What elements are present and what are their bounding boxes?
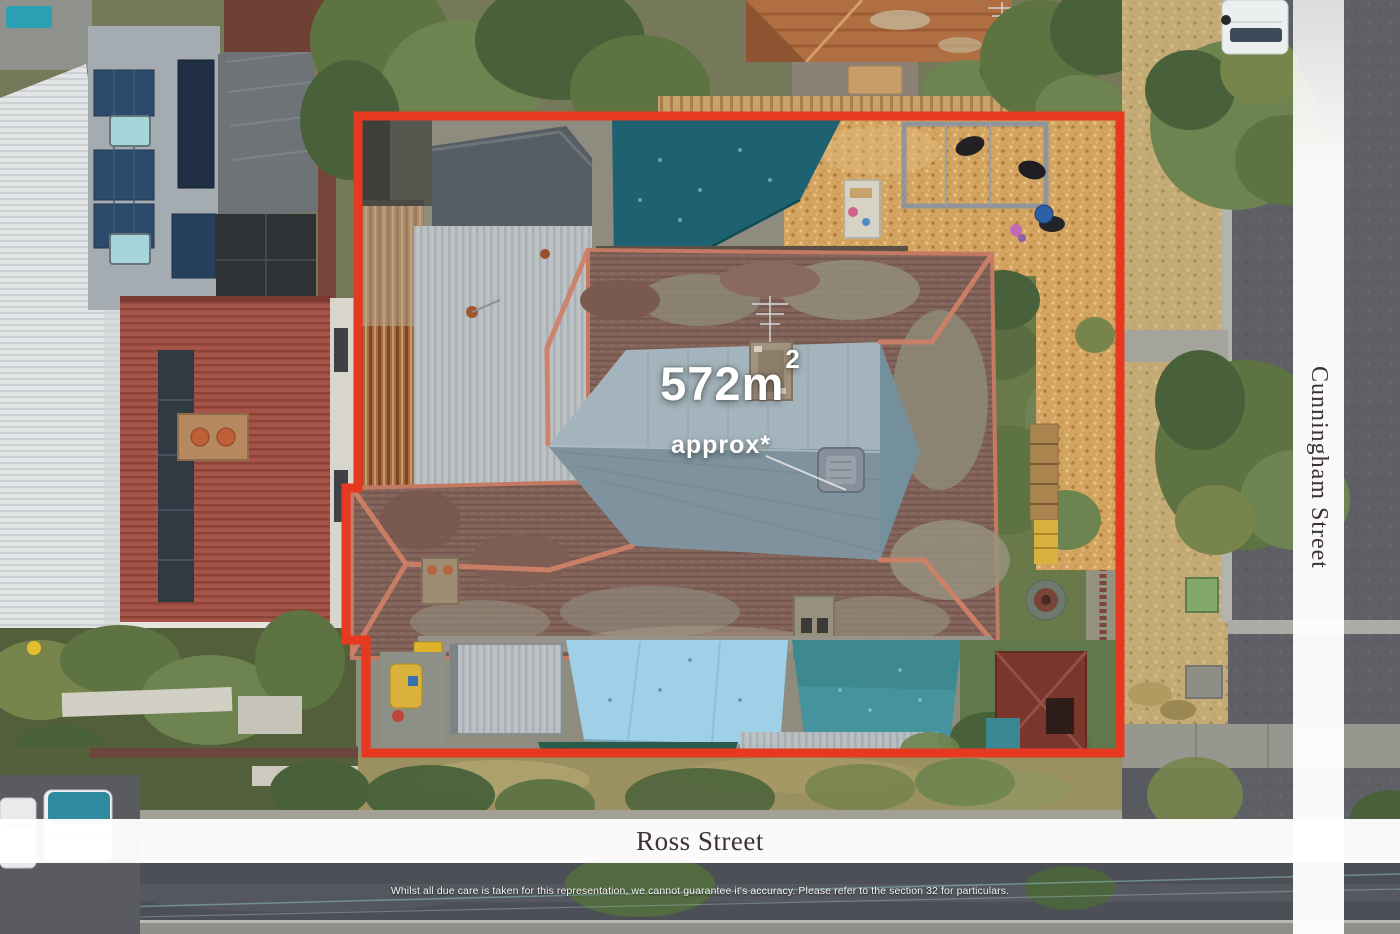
area-label: 572m2 (590, 360, 870, 407)
utility-pit-grey (1186, 666, 1222, 698)
left-neighbour-buildings (0, 0, 356, 652)
fire-pit (1026, 580, 1066, 620)
aerial-photo (0, 0, 1400, 934)
street-label-ross: Ross Street (636, 826, 764, 857)
solar-strip (158, 350, 194, 602)
street-band-ross: Ross Street (0, 819, 1400, 863)
brick-front-fence (90, 748, 358, 758)
area-superscript: 2 (785, 344, 800, 374)
parked-van-top-right (1221, 0, 1288, 54)
street-label-cunningham: Cunningham Street (1305, 366, 1332, 569)
utility-pit-green (1186, 578, 1218, 612)
street-band-cunningham: Cunningham Street (1293, 0, 1344, 934)
blue-barrel (1035, 205, 1053, 223)
area-value: 572m (660, 357, 784, 410)
kids-table (844, 180, 880, 238)
disclaimer-text: Whilst all due care is taken for this re… (0, 885, 1400, 897)
footpath (1122, 724, 1400, 768)
rooftop-ac-unit (6, 6, 52, 28)
aerial-property-view: 572m2 approx* Ross Street Cunningham Str… (0, 0, 1400, 934)
skylight (110, 116, 150, 146)
garden-shed (450, 644, 562, 734)
shade-sail-teal-green (792, 640, 962, 740)
brick-chimney (178, 414, 248, 460)
cunningham-street-area (1122, 0, 1400, 934)
area-qualifier: approx* (590, 431, 852, 460)
shade-sail-light-blue (566, 640, 788, 746)
chimney (422, 558, 458, 604)
skylight (110, 234, 150, 264)
garden-ladder (1030, 424, 1058, 564)
